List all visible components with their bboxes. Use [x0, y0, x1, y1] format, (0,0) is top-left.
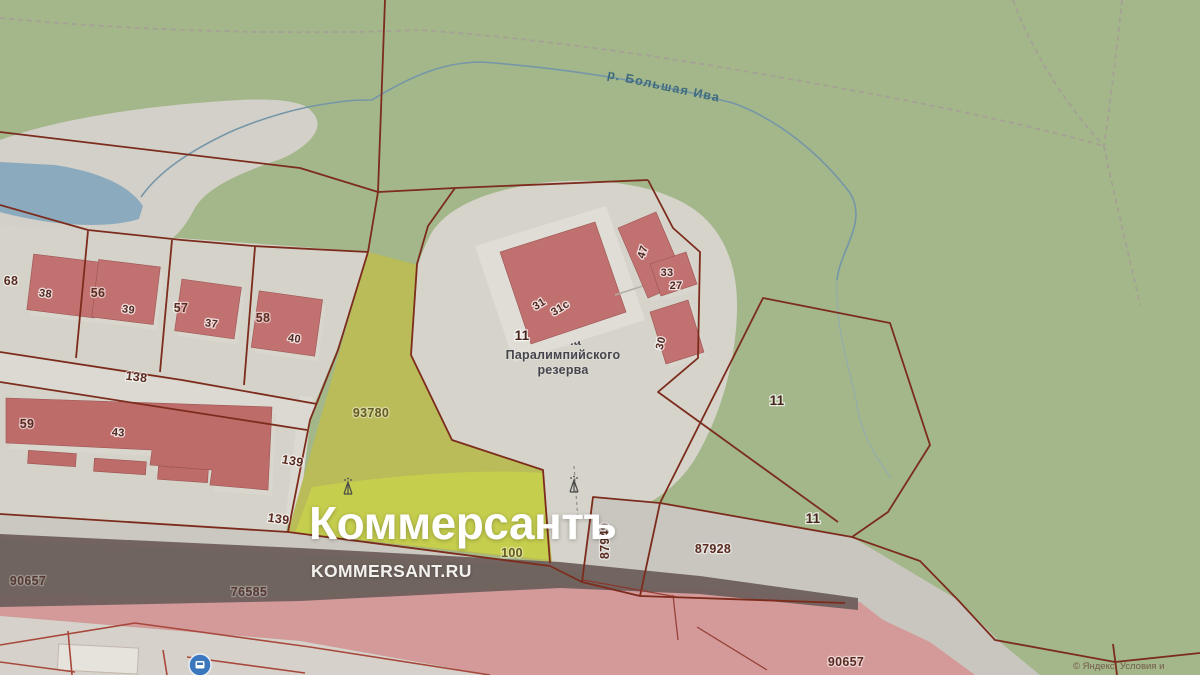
building-label-40: 40 [287, 332, 301, 346]
school-caption-line3: резерва [537, 363, 589, 377]
map-copyright: © Яндекс. Условия и [1073, 661, 1200, 672]
building-label-37: 37 [204, 317, 218, 331]
school-caption-line2: Паралимпийского [506, 348, 621, 362]
road-label-139-2: 139 [267, 511, 291, 528]
watermark-title: Коммерсантъ [309, 496, 616, 550]
parcel-label-87928: 87928 [695, 542, 731, 556]
cadastral-map-image: Школа [0, 0, 1200, 675]
parcel-label-11-park: 11 [770, 393, 785, 408]
parcel-label-76585: 76585 [231, 585, 267, 599]
building-label-43: 43 [111, 427, 125, 440]
parcel-label-93780: 93780 [353, 406, 389, 420]
parcel-label-56: 56 [91, 286, 106, 300]
parcel-label-11-school: 11 [515, 328, 530, 343]
building-label-33: 33 [661, 267, 674, 279]
watermark-site: KOMMERSANT.RU [311, 561, 472, 582]
parcel-label-58: 58 [256, 311, 271, 325]
parcel-label-90657: 90657 [10, 574, 46, 588]
building-40 [251, 291, 327, 362]
building-label-39: 39 [121, 303, 135, 317]
transport-stop-icon [189, 654, 211, 675]
building-label-27: 27 [670, 280, 683, 292]
parcel-label-57: 57 [174, 301, 189, 315]
road-label-138: 138 [125, 369, 148, 386]
parcel-label-11-strip: 11 [806, 511, 821, 526]
building-label-38: 38 [38, 287, 52, 301]
parcel-label-59: 59 [20, 417, 35, 431]
map-canvas: Школа [0, 0, 1200, 675]
parcel-label-68: 68 [4, 274, 19, 288]
parcel-label-90657-2: 90657 [828, 655, 864, 669]
